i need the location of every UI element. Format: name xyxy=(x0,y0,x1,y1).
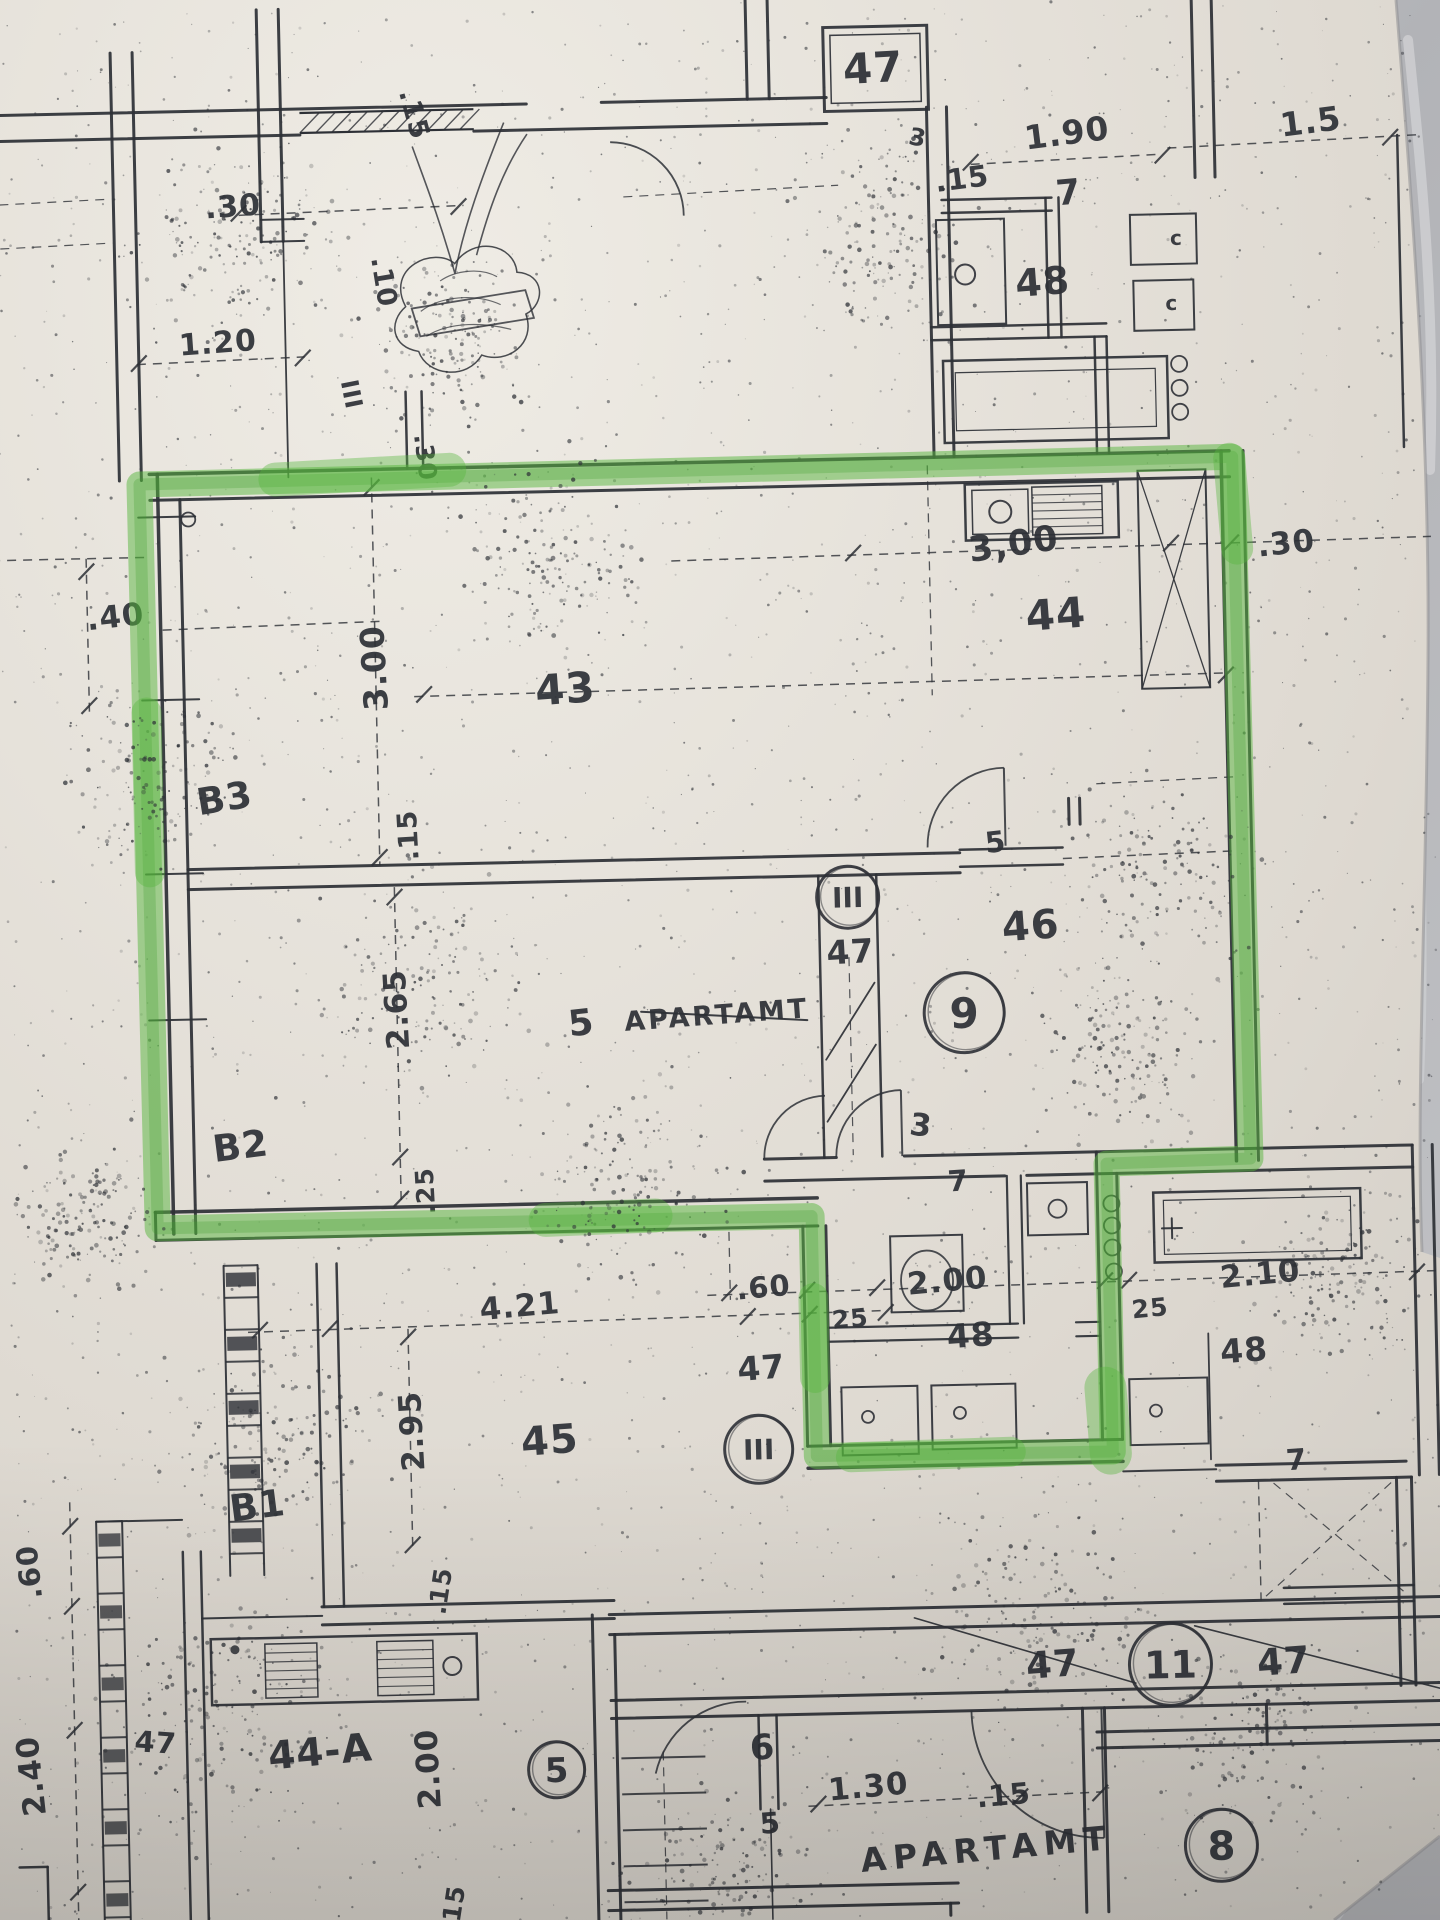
floor-plan-photo: 471.901.5.157483cc.301.20.15.10III.403.0… xyxy=(0,0,1440,1920)
photo-vignette xyxy=(0,0,1440,1920)
